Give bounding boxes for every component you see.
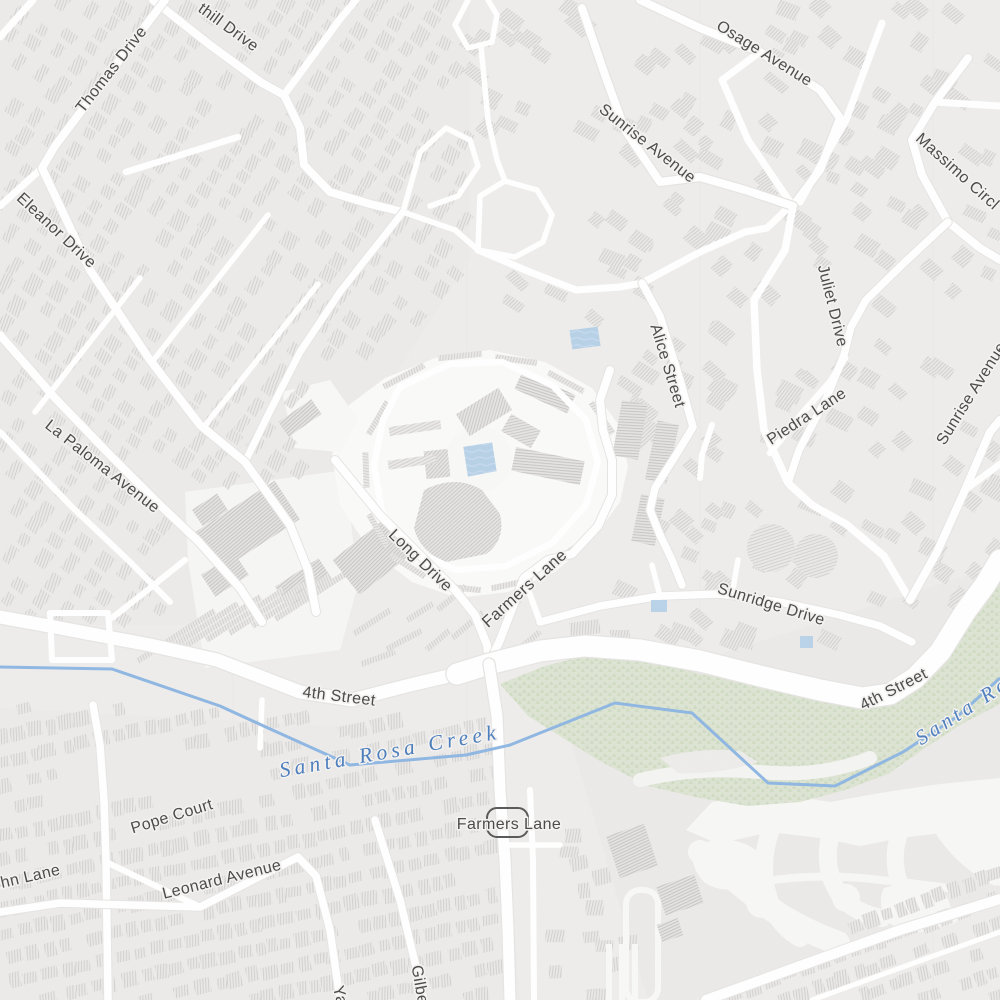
svg-text:Farmers Lane: Farmers Lane	[457, 816, 561, 833]
